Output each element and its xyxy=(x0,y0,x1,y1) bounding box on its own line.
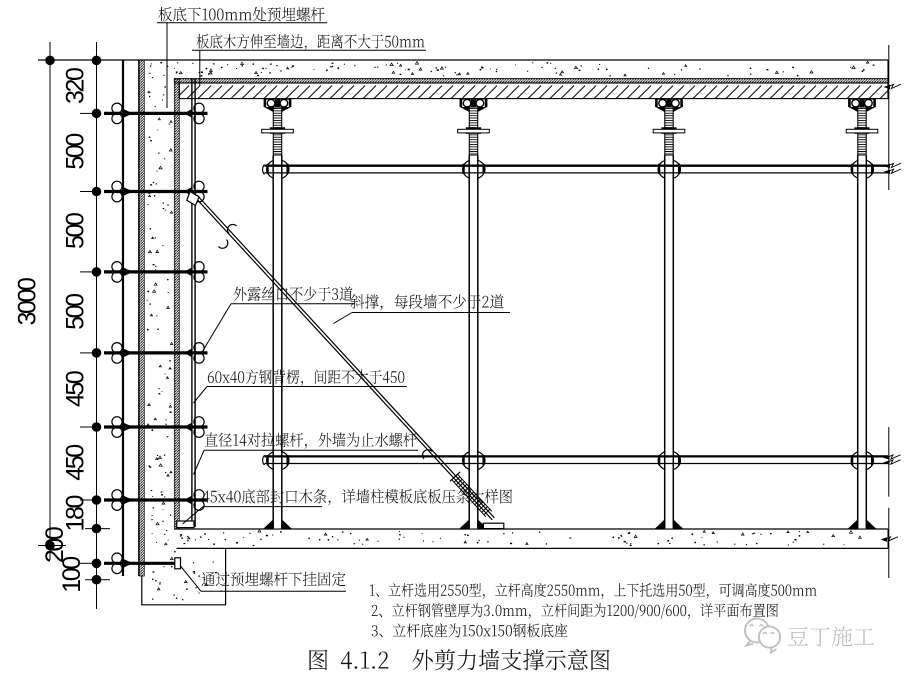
svg-text:3000: 3000 xyxy=(14,278,42,326)
svg-text:180: 180 xyxy=(62,496,90,532)
svg-text:500: 500 xyxy=(62,213,90,249)
svg-text:450: 450 xyxy=(62,371,90,407)
svg-text:500: 500 xyxy=(62,294,90,330)
svg-text:320: 320 xyxy=(62,68,90,104)
svg-text:500: 500 xyxy=(62,134,90,170)
svg-text:450: 450 xyxy=(62,445,90,481)
svg-text:100: 100 xyxy=(58,557,86,593)
svg-text:200: 200 xyxy=(41,527,69,563)
